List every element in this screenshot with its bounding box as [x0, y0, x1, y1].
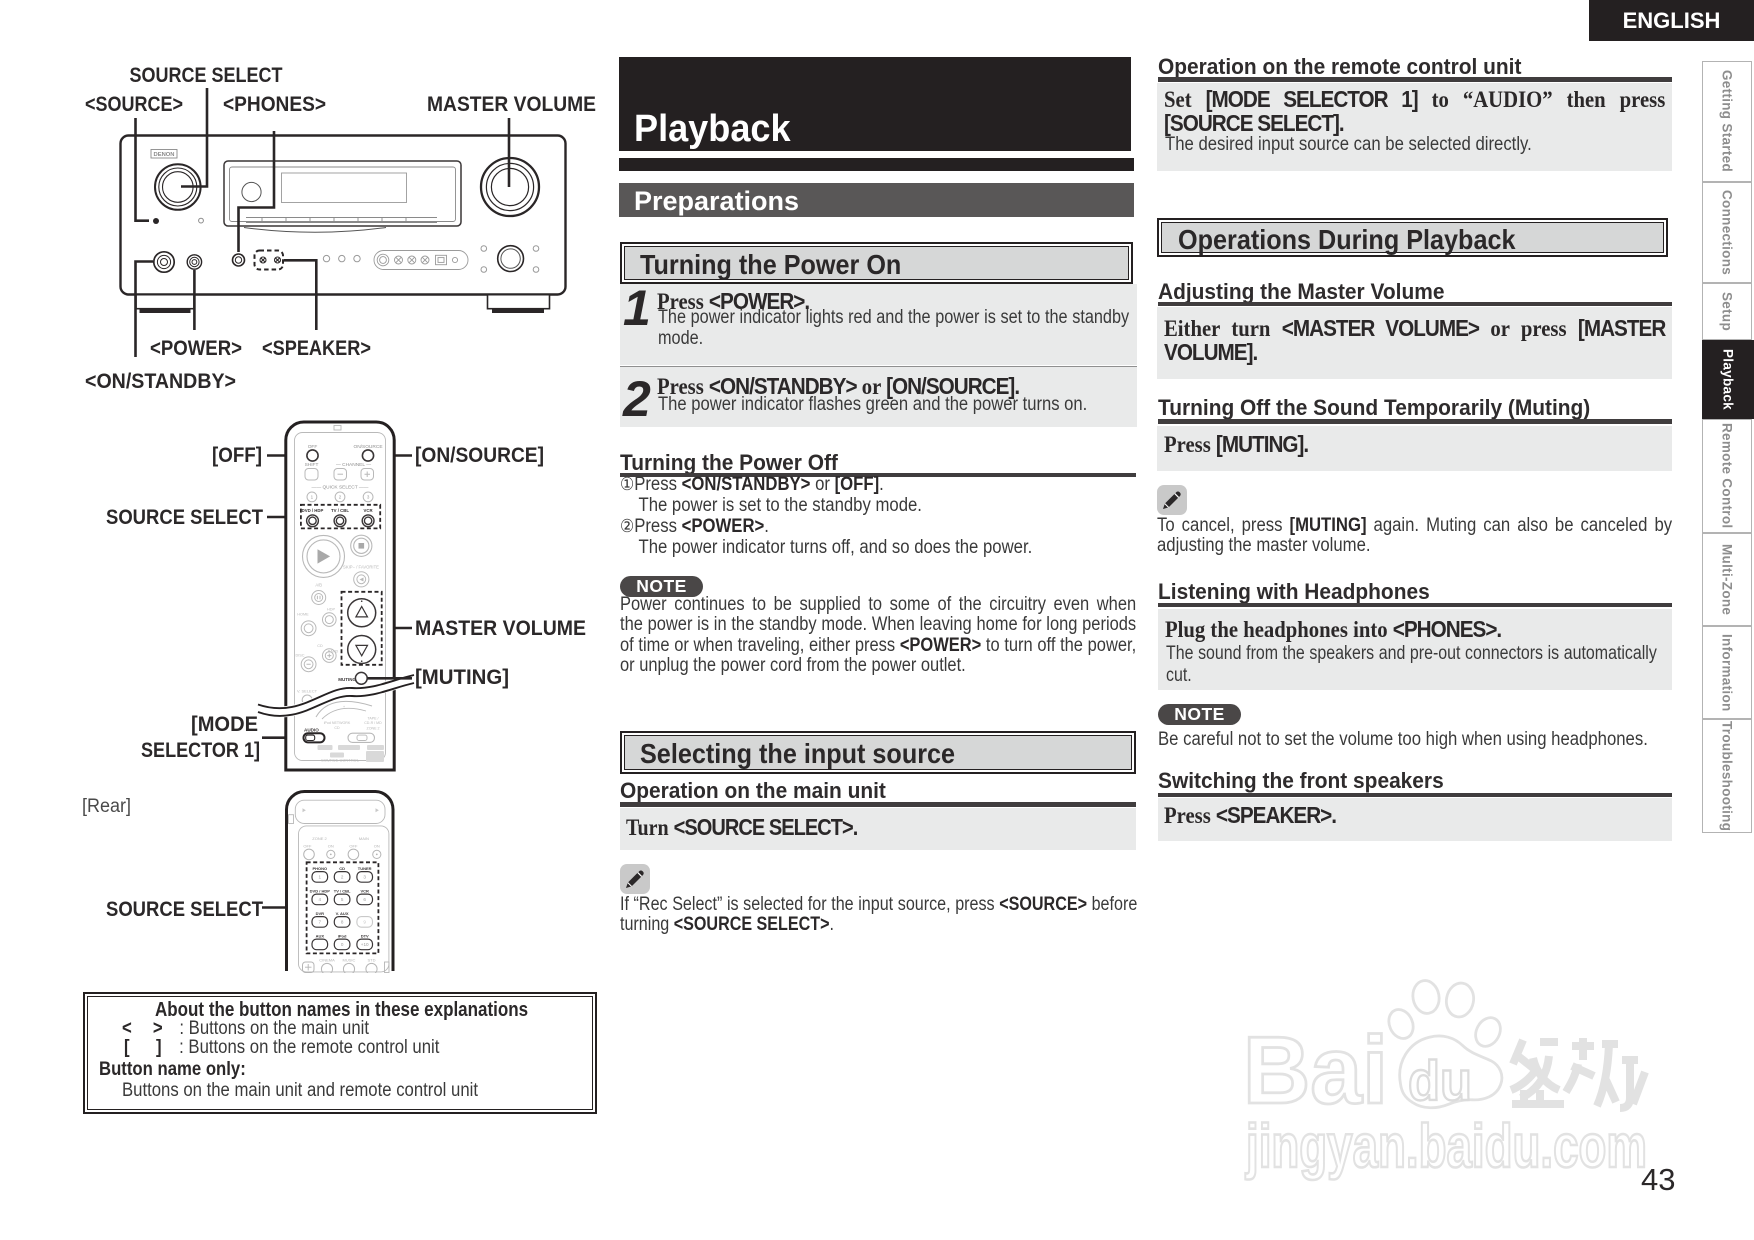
svg-text:<PHONES>: <PHONES>: [223, 92, 326, 116]
svg-text:TV / CBL: TV / CBL: [334, 889, 351, 894]
svg-text:PHONO: PHONO: [312, 866, 327, 871]
svg-text:—— QUICK SELECT ——: —— QUICK SELECT ——: [312, 485, 369, 491]
svg-text:— SOURCE CONTROL —: — SOURCE CONTROL —: [316, 758, 364, 763]
svg-text:CD: CD: [339, 866, 345, 871]
svg-text:SHIFT: SHIFT: [305, 462, 319, 468]
svg-text:AUX: AUX: [316, 934, 325, 939]
svg-text:OFF: OFF: [303, 844, 312, 849]
svg-text:<SOURCE>: <SOURCE>: [85, 92, 183, 116]
svg-text:— CHANNEL —: — CHANNEL —: [336, 462, 371, 468]
svg-text:MASTER VOLUME: MASTER VOLUME: [427, 92, 596, 116]
svg-text:iPod: iPod: [338, 934, 347, 939]
svg-text:DVD / HDP: DVD / HDP: [310, 889, 331, 894]
svg-text:TV / CBL: TV / CBL: [331, 508, 349, 513]
svg-text:Bai: Bai: [1243, 1017, 1388, 1124]
svg-text:CD-R / MD: CD-R / MD: [364, 721, 382, 725]
svg-text:ZONE 2: ZONE 2: [312, 836, 327, 841]
svg-text:2: 2: [341, 875, 344, 880]
svg-text:0: 0: [341, 942, 344, 947]
svg-text:DISC: DISC: [295, 654, 304, 658]
svg-text:HDP: HDP: [327, 608, 335, 612]
svg-text:ZONE 2: ZONE 2: [367, 727, 380, 731]
svg-text:MUTING: MUTING: [338, 677, 356, 682]
svg-text:V. SELECT: V. SELECT: [297, 689, 318, 694]
svg-text:<ON/STANDBY>: <ON/STANDBY>: [85, 369, 236, 393]
svg-text:DENON: DENON: [154, 152, 175, 158]
svg-text:CD: CD: [317, 644, 323, 648]
svg-text:MAIN: MAIN: [359, 836, 369, 841]
svg-text:TAPE /: TAPE /: [367, 717, 378, 721]
svg-text:<POWER>: <POWER>: [150, 336, 242, 360]
svg-text:8: 8: [341, 920, 344, 925]
svg-text:CD: CD: [334, 726, 340, 730]
svg-text:DVD / HDP: DVD / HDP: [302, 508, 324, 513]
svg-text:OFF: OFF: [308, 444, 318, 450]
svg-text:5: 5: [341, 897, 344, 902]
svg-text:A/B: A/B: [315, 583, 322, 588]
svg-text:MUSIC: MUSIC: [343, 958, 356, 963]
svg-text:<SPEAKER>: <SPEAKER>: [262, 336, 371, 360]
svg-text:7: 7: [319, 920, 322, 925]
svg-text:DVR: DVR: [316, 911, 325, 916]
svg-text:HOME: HOME: [297, 613, 309, 617]
svg-text:STD: STD: [368, 958, 376, 963]
svg-text:6: 6: [363, 897, 366, 902]
svg-text:OFF: OFF: [349, 844, 358, 849]
svg-text:V. AUX: V. AUX: [336, 911, 349, 916]
svg-text:4: 4: [319, 897, 322, 902]
svg-text:SOURCE SELECT: SOURCE SELECT: [106, 897, 263, 921]
svg-text:ON: ON: [328, 844, 334, 849]
svg-text:[MODE: [MODE: [191, 712, 258, 736]
svg-text:ON: ON: [374, 844, 380, 849]
svg-text:+10: +10: [361, 942, 369, 947]
svg-text:AUDIO: AUDIO: [304, 728, 319, 733]
svg-text:[MUTING]: [MUTING]: [415, 665, 509, 689]
svg-text:VCR: VCR: [364, 508, 374, 513]
svg-text:MASTER VOLUME: MASTER VOLUME: [415, 616, 586, 640]
svg-text:[Rear]: [Rear]: [82, 796, 131, 817]
svg-text:iPod NETWORK: iPod NETWORK: [324, 721, 351, 725]
svg-text:[OFF]: [OFF]: [212, 443, 262, 467]
svg-text:9: 9: [363, 920, 366, 925]
svg-text:CINEMA: CINEMA: [319, 958, 335, 963]
svg-text:VCR: VCR: [360, 889, 369, 894]
svg-text:3: 3: [363, 875, 366, 880]
svg-text:SOURCE SELECT: SOURCE SELECT: [106, 505, 263, 529]
svg-text:SELECTOR 1]: SELECTOR 1]: [141, 738, 260, 762]
svg-text:SOURCE SELECT: SOURCE SELECT: [130, 63, 283, 87]
svg-text:1: 1: [319, 875, 322, 880]
svg-text:DTV: DTV: [361, 934, 369, 939]
svg-text:du: du: [1408, 1049, 1472, 1112]
svg-text:jingyan.baidu.com: jingyan.baidu.com: [1245, 1112, 1647, 1180]
svg-text:TUNER: TUNER: [358, 866, 372, 871]
svg-text:SKIP− / FAVORITE: SKIP− / FAVORITE: [343, 564, 379, 569]
svg-text:[ON/SOURCE]: [ON/SOURCE]: [415, 443, 544, 467]
